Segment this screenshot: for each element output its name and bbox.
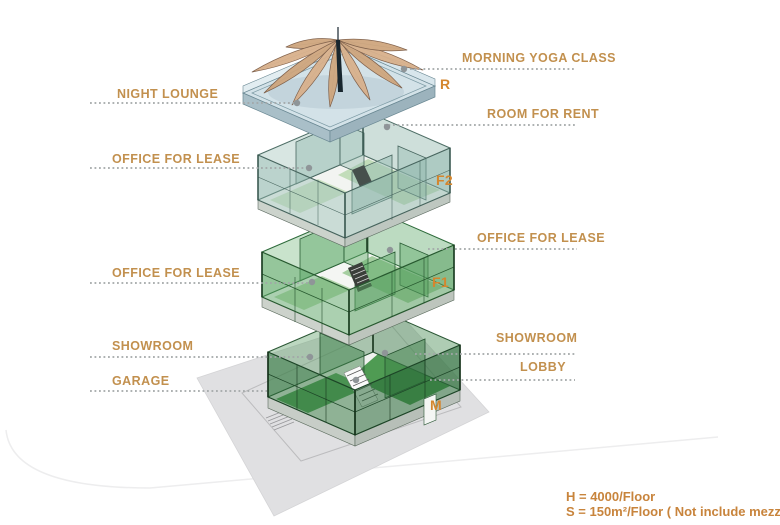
callout-room-for-rent: ROOM FOR RENT	[487, 107, 599, 121]
callout-night-lounge: NIGHT LOUNGE	[117, 87, 218, 101]
callout-showroom-left: SHOWROOM	[112, 339, 193, 353]
building-axonometric-drawing	[0, 0, 780, 525]
note-floor-area: S = 150m²/Floor ( Not include mezzanine …	[566, 504, 780, 519]
floor-marker-f1: F1	[432, 274, 449, 290]
architecture-exploded-diagram: MORNING YOGA CLASS NIGHT LOUNGE ROOM FOR…	[0, 0, 780, 525]
callout-office-for-lease-f2: OFFICE FOR LEASE	[112, 152, 240, 166]
floor-marker-roof: R	[440, 76, 450, 92]
note-floor-height: H = 4000/Floor	[566, 489, 655, 504]
callout-office-for-lease-f1-right: OFFICE FOR LEASE	[477, 231, 605, 245]
callout-office-for-lease-f1-left: OFFICE FOR LEASE	[112, 266, 240, 280]
callout-lobby: LOBBY	[520, 360, 566, 374]
floor-marker-m: M	[430, 397, 442, 413]
floor-marker-f2: F2	[436, 172, 453, 188]
callout-morning-yoga-class: MORNING YOGA CLASS	[462, 51, 616, 65]
callout-garage: GARAGE	[112, 374, 170, 388]
callout-showroom-right: SHOWROOM	[496, 331, 577, 345]
